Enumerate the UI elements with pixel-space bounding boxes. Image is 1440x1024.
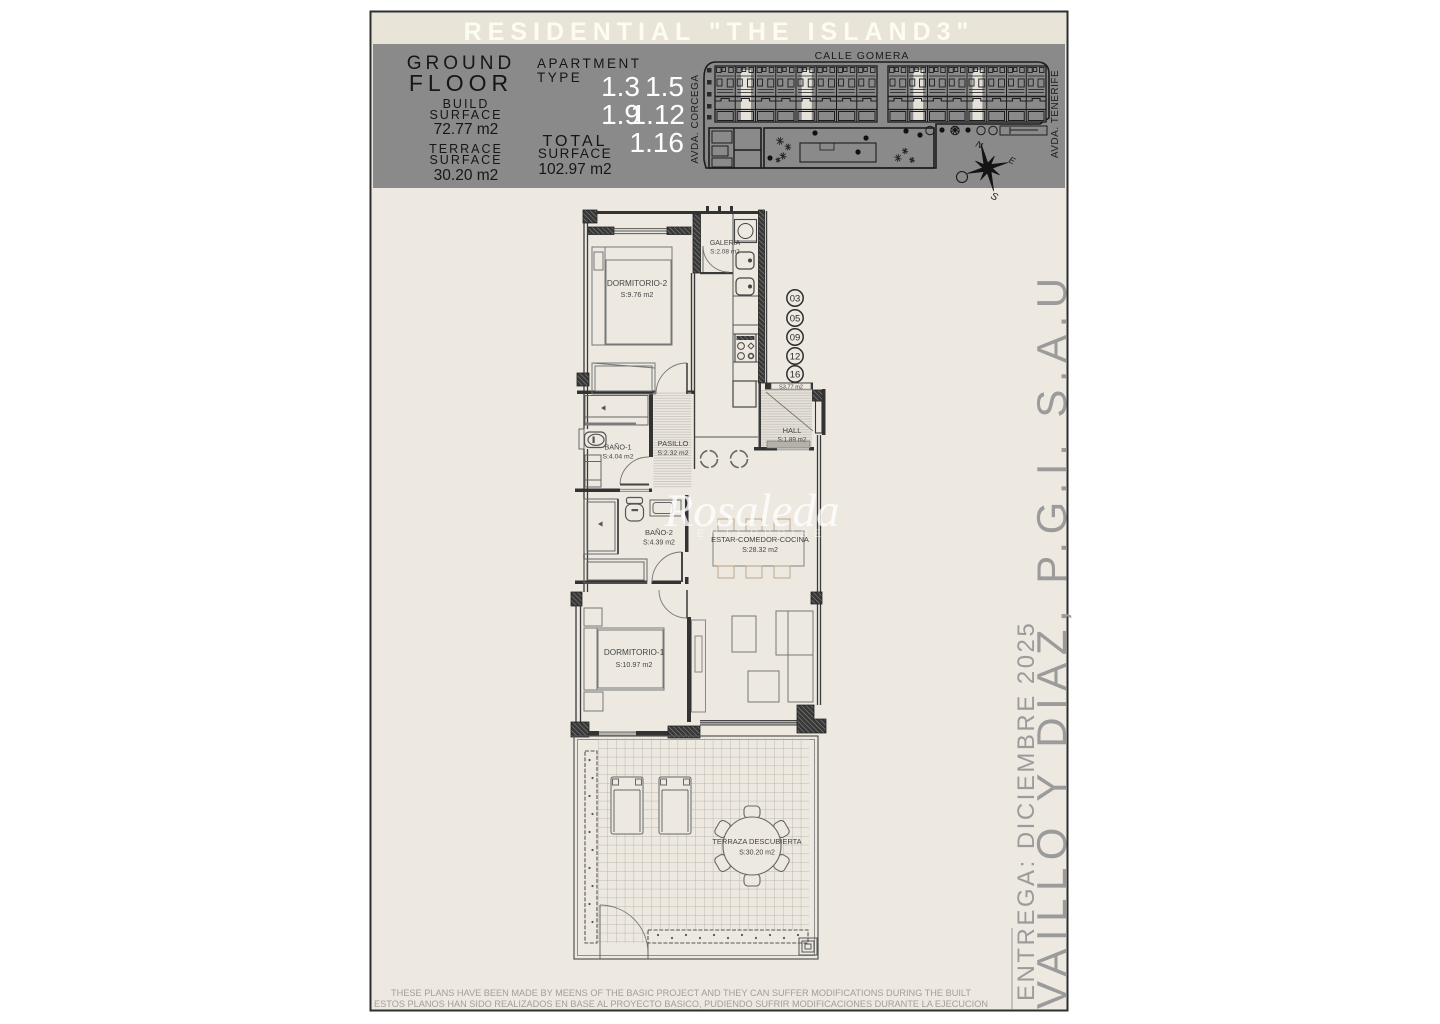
svg-text:1.12: 1.12: [631, 99, 686, 130]
svg-text:THESE PLANS HAVE BEEN MADE BY: THESE PLANS HAVE BEEN MADE BY MEENS OF T…: [391, 988, 971, 998]
svg-text:S:1.89 m2: S:1.89 m2: [778, 437, 807, 444]
svg-text:S:2.32 m2: S:2.32 m2: [658, 450, 689, 457]
svg-text:VAILLO Y DIAZ, P.G.I. S.A.U: VAILLO Y DIAZ, P.G.I. S.A.U: [1028, 270, 1075, 1009]
svg-text:S:4.04 m2: S:4.04 m2: [603, 454, 634, 461]
svg-text:12: 12: [790, 351, 801, 362]
svg-text:BAÑO-1: BAÑO-1: [604, 443, 631, 452]
svg-text:ESTOS PLANOS HAN SIDO REALIZAD: ESTOS PLANOS HAN SIDO REALIZADOS EN BASE…: [374, 999, 988, 1009]
svg-text:SURFACE: SURFACE: [429, 153, 502, 167]
svg-text:SURFACE: SURFACE: [429, 108, 502, 122]
svg-text:HALL: HALL: [783, 426, 802, 435]
svg-text:DORMITORIO-2: DORMITORIO-2: [607, 279, 668, 288]
svg-text:S:30.20 m2: S:30.20 m2: [739, 850, 775, 857]
svg-text:05: 05: [790, 313, 801, 324]
svg-text:S3.77 m2: S3.77 m2: [779, 384, 803, 390]
svg-text:AVDA. TENERIFE: AVDA. TENERIFE: [1050, 70, 1061, 158]
svg-text:72.77 m2: 72.77 m2: [434, 121, 499, 138]
svg-text:S:10.97 m2: S:10.97 m2: [616, 660, 653, 669]
svg-text:S:28.32 m2: S:28.32 m2: [742, 547, 778, 554]
svg-text:1.5: 1.5: [645, 71, 684, 102]
svg-text:DORMITORIO-1: DORMITORIO-1: [604, 648, 665, 657]
svg-text:RESIDENTIAL "THE ISLAND3": RESIDENTIAL "THE ISLAND3": [464, 18, 975, 46]
svg-text:SURFACE: SURFACE: [538, 146, 612, 161]
svg-text:S:9.76 m2: S:9.76 m2: [621, 290, 654, 299]
svg-text:PASILLO: PASILLO: [658, 439, 689, 448]
svg-text:03: 03: [790, 293, 801, 304]
svg-text:1.3: 1.3: [601, 71, 640, 102]
svg-text:1.16: 1.16: [630, 127, 685, 158]
svg-text:30.20 m2: 30.20 m2: [434, 167, 499, 184]
svg-text:S:4.39 m2: S:4.39 m2: [643, 540, 675, 547]
svg-text:09: 09: [790, 332, 801, 343]
svg-text:ENTERPRISE: ENTERPRISE: [697, 528, 827, 540]
svg-text:TYPE: TYPE: [537, 70, 582, 85]
svg-text:16: 16: [790, 369, 801, 380]
svg-text:102.97 m2: 102.97 m2: [538, 161, 611, 178]
svg-text:CALLE GOMERA: CALLE GOMERA: [815, 50, 910, 62]
svg-text:AVDA. CORCEGA: AVDA. CORCEGA: [690, 74, 701, 163]
svg-text:TERRAZA DESCUBIERTA: TERRAZA DESCUBIERTA: [712, 837, 801, 846]
svg-text:FLOOR: FLOOR: [409, 70, 513, 96]
svg-text:APARTMENT: APARTMENT: [537, 56, 642, 71]
